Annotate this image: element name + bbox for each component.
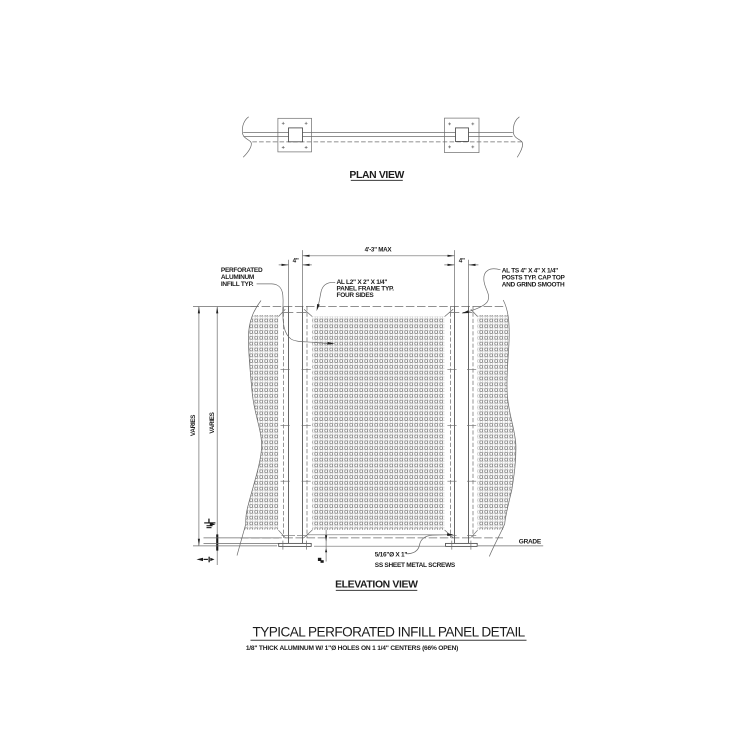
svg-text:4'-3" MAX: 4'-3" MAX [365, 246, 393, 253]
svg-text:TYPICAL PERFORATED INFILL PANE: TYPICAL PERFORATED INFILL PANEL DETAIL [253, 625, 526, 640]
svg-text:PERFORATED: PERFORATED [221, 267, 263, 274]
svg-text:ELEVATION VIEW: ELEVATION VIEW [335, 580, 418, 591]
svg-text:PLAN VIEW: PLAN VIEW [349, 170, 404, 181]
svg-text:SS SHEET METAL SCREWS: SS SHEET METAL SCREWS [375, 562, 456, 569]
svg-text:AND GRIND SMOOTH: AND GRIND SMOOTH [502, 281, 565, 288]
svg-text:ALUMINUM: ALUMINUM [221, 274, 254, 281]
svg-text:INFILL TYP.: INFILL TYP. [221, 281, 254, 288]
svg-text:VARIES: VARIES [190, 415, 197, 436]
svg-text:4": 4" [459, 258, 465, 265]
svg-text:GRADE: GRADE [519, 539, 542, 546]
svg-text:FOUR SIDES: FOUR SIDES [337, 292, 375, 299]
svg-text:1/8" THICK ALUMINUM W/ 1"Ø HOL: 1/8" THICK ALUMINUM W/ 1"Ø HOLES ON 1 1/… [246, 645, 458, 652]
svg-text:VARIES: VARIES [209, 412, 216, 433]
svg-text:5/16"Ø X 1": 5/16"Ø X 1" [375, 551, 408, 558]
svg-text:POSTS TYP. CAP TOP: POSTS TYP. CAP TOP [502, 274, 566, 281]
svg-text:AL TS 4" X 4" X 1/4": AL TS 4" X 4" X 1/4" [502, 267, 558, 274]
svg-text:4": 4" [293, 258, 299, 265]
